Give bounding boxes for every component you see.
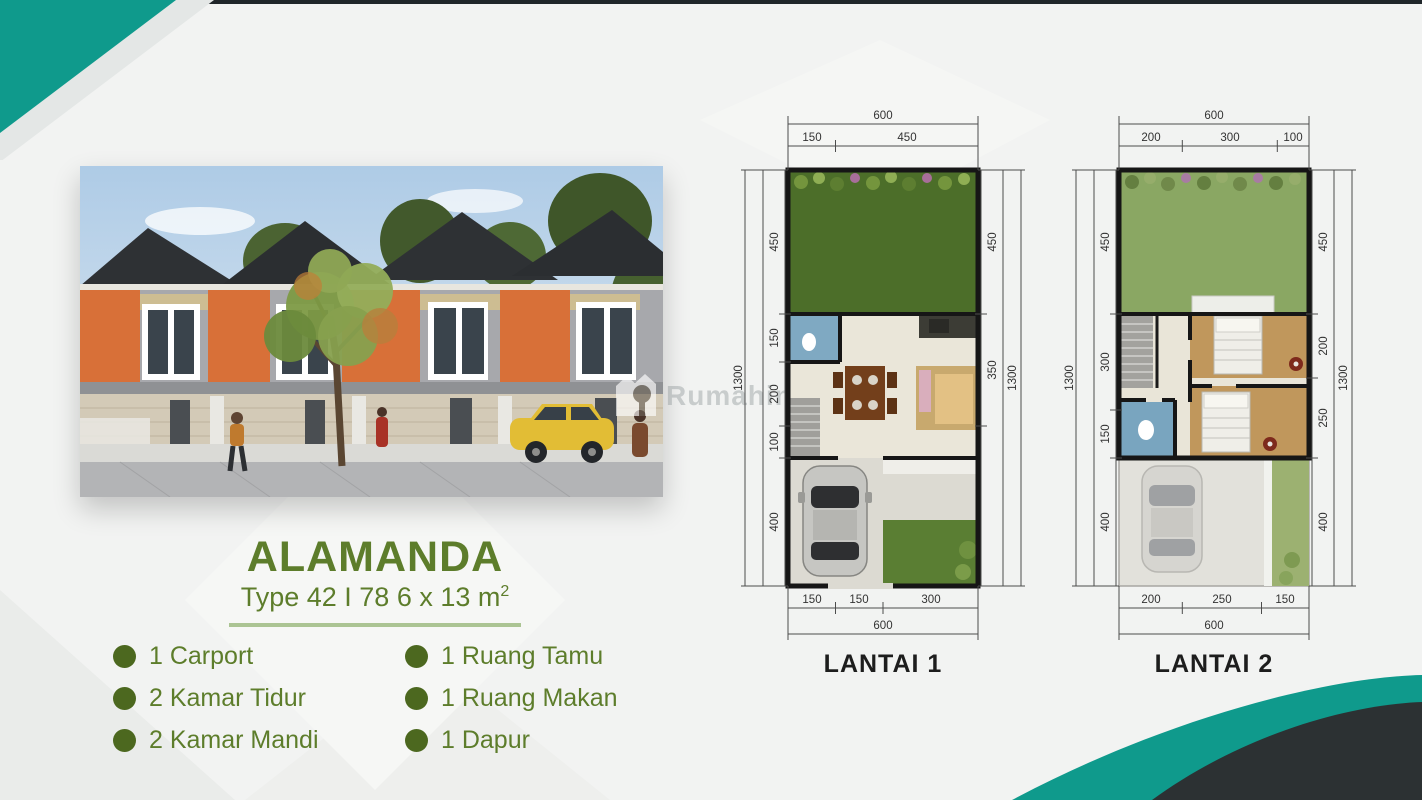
rumahindo-house-logo-icon — [614, 370, 658, 422]
car-top-view — [798, 466, 872, 576]
feature-item: 2 Kamar Mandi — [113, 726, 405, 755]
project-title: ALAMANDA — [95, 536, 655, 579]
project-type: Type 42 I 78 6 x 13 m2 — [95, 582, 655, 613]
dim-right-seg: 250 — [1318, 408, 1330, 427]
feature-label: 1 Carport — [149, 642, 253, 671]
feature-bullet-icon — [113, 687, 136, 710]
dim-top-seg: 200 — [1141, 132, 1160, 144]
dim-left-seg: 200 — [769, 384, 781, 403]
dim-right-seg: 350 — [987, 360, 999, 379]
dim-top-total: 600 — [1204, 110, 1223, 122]
plan2-interior — [1119, 170, 1309, 586]
feature-bullet-icon — [113, 729, 136, 752]
feature-list: 1 Carport 1 Ruang Tamu 2 Kamar Tidur 1 R… — [113, 642, 663, 755]
dim-right-seg: 450 — [987, 232, 999, 251]
corner-curve-decoration — [1002, 625, 1422, 800]
dim-top-seg: 100 — [1283, 132, 1302, 144]
feature-label: 2 Kamar Mandi — [149, 726, 319, 755]
feature-item: 1 Ruang Tamu — [405, 642, 663, 671]
project-type-text: Type 42 I 78 6 x 13 m — [241, 582, 501, 612]
slide: Rumahindo ALAMANDA Type 42 I 78 6 x 13 m… — [0, 0, 1422, 800]
feature-bullet-icon — [405, 645, 428, 668]
dim-left-total: 1300 — [733, 365, 745, 391]
dim-right-seg: 400 — [1318, 512, 1330, 531]
dim-top-seg: 300 — [1220, 132, 1239, 144]
street — [80, 444, 663, 497]
dim-right-seg: 200 — [1318, 336, 1330, 355]
dim-bottom-seg: 150 — [849, 594, 868, 606]
dim-left-seg: 450 — [1100, 232, 1112, 251]
feature-item: 1 Dapur — [405, 726, 663, 755]
dim-bottom-seg: 150 — [802, 594, 821, 606]
feature-label: 1 Dapur — [441, 726, 530, 755]
dim-left-seg: 150 — [769, 328, 781, 347]
dim-top-seg: 450 — [897, 132, 916, 144]
feature-bullet-icon — [405, 687, 428, 710]
house-photo — [80, 166, 663, 497]
dim-left-seg: 300 — [1100, 352, 1112, 371]
dim-left-seg: 450 — [769, 232, 781, 251]
feature-label: 1 Ruang Tamu — [441, 642, 603, 671]
dim-left-seg: 400 — [769, 512, 781, 531]
plan1-interior — [788, 170, 978, 586]
dim-bottom-seg: 150 — [1275, 594, 1294, 606]
floorplan-lantai-1: 600 150 450 150 150 300 600 1300 450 150… — [733, 100, 1033, 679]
dim-top-total: 600 — [873, 110, 892, 122]
dim-bottom-seg: 300 — [921, 594, 940, 606]
feature-bullet-icon — [113, 645, 136, 668]
feature-item: 1 Carport — [113, 642, 405, 671]
feature-item: 2 Kamar Tidur — [113, 684, 405, 713]
plan-label: LANTAI 1 — [733, 650, 1033, 679]
car-top-view-faded — [1142, 466, 1202, 572]
dim-bottom-seg: 250 — [1212, 594, 1231, 606]
project-type-sup: 2 — [500, 583, 509, 600]
dim-left-total: 1300 — [1064, 365, 1076, 391]
dim-bottom-seg: 200 — [1141, 594, 1160, 606]
dim-bottom-total: 600 — [873, 620, 892, 632]
dim-top-seg: 150 — [802, 132, 821, 144]
feature-bullet-icon — [405, 729, 428, 752]
dim-right-seg: 450 — [1318, 232, 1330, 251]
feature-label: 1 Ruang Makan — [441, 684, 618, 713]
title-divider — [229, 623, 521, 627]
feature-item: 1 Ruang Makan — [405, 684, 663, 713]
floorplan-lantai-2: 600 200 300 100 200 250 150 600 1300 450… — [1064, 100, 1364, 679]
dim-left-seg: 100 — [769, 432, 781, 451]
dim-left-seg: 400 — [1100, 512, 1112, 531]
corner-triangle-decoration — [0, 0, 230, 160]
dim-right-total: 1300 — [1007, 365, 1019, 391]
dim-right-total: 1300 — [1338, 365, 1350, 391]
title-block: ALAMANDA Type 42 I 78 6 x 13 m2 — [95, 536, 655, 627]
dim-left-seg: 150 — [1100, 424, 1112, 443]
feature-label: 2 Kamar Tidur — [149, 684, 306, 713]
